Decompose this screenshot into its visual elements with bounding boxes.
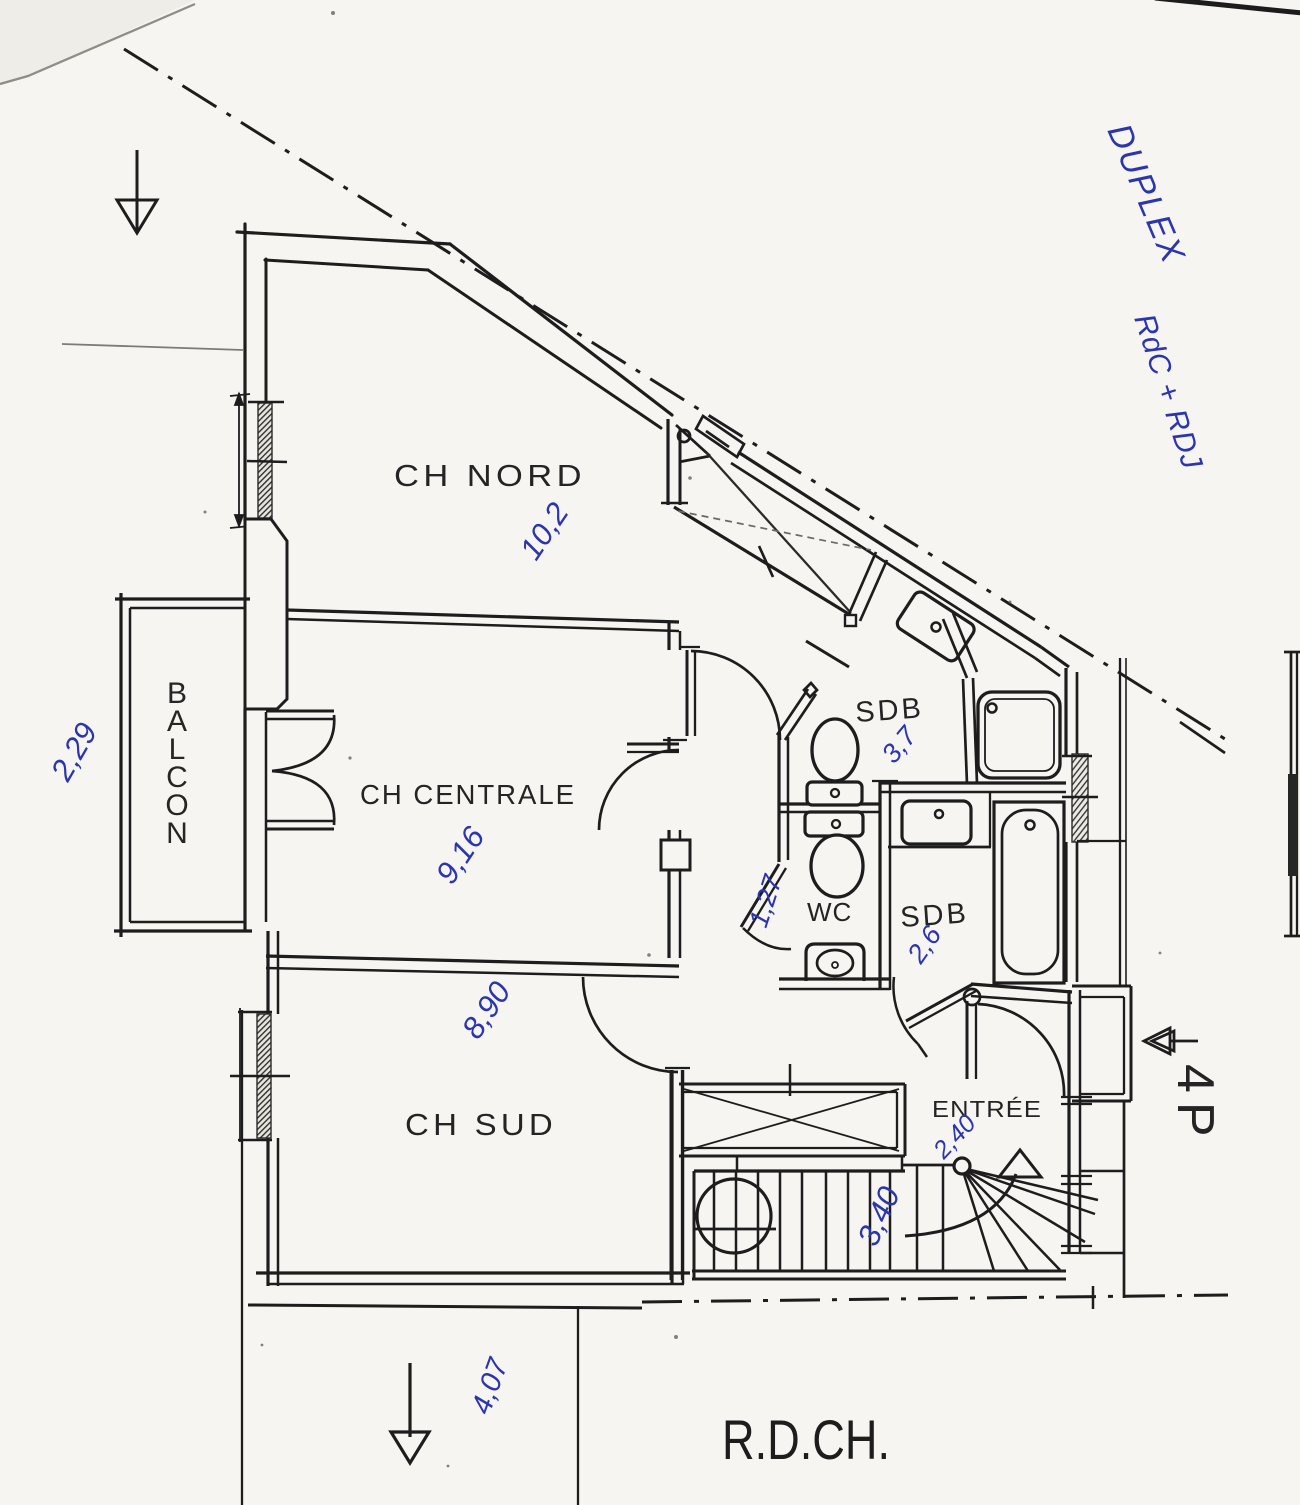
svg-text:CH NORD: CH NORD xyxy=(394,458,586,493)
svg-text:SDB: SDB xyxy=(899,897,970,934)
svg-text:R.D.CH.: R.D.CH. xyxy=(722,1408,890,1471)
svg-text:WC: WC xyxy=(807,897,852,927)
svg-text:CH SUD: CH SUD xyxy=(405,1107,557,1142)
svg-text:N: N xyxy=(166,817,188,850)
svg-text:4P: 4P xyxy=(1166,1064,1224,1146)
svg-text:ENTRÉE: ENTRÉE xyxy=(932,1096,1042,1122)
svg-text:SDB: SDB xyxy=(854,692,925,729)
svg-text:CH CENTRALE: CH CENTRALE xyxy=(360,779,576,810)
